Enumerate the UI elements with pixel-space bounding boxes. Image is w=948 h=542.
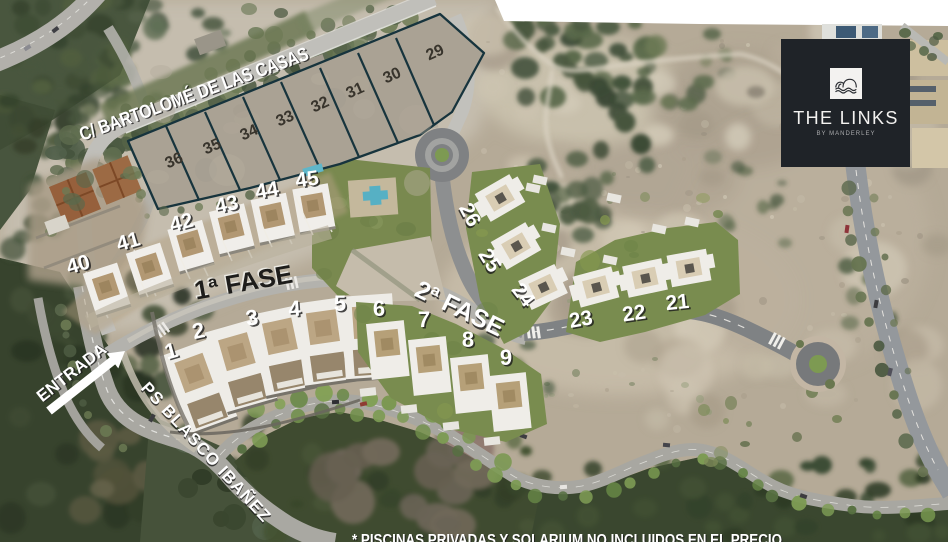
svg-text:21: 21	[665, 290, 691, 315]
svg-text:45: 45	[294, 167, 321, 193]
svg-text:THE LINKS: THE LINKS	[793, 108, 899, 128]
svg-text:23: 23	[567, 306, 594, 333]
svg-text:7: 7	[418, 307, 430, 332]
svg-text:* PISCINAS PRIVADAS Y SOLARIUM: * PISCINAS PRIVADAS Y SOLARIUM NO INCLUI…	[352, 532, 782, 542]
svg-text:8: 8	[462, 327, 474, 352]
svg-text:9: 9	[500, 345, 512, 370]
svg-text:5: 5	[334, 291, 346, 316]
svg-text:6: 6	[373, 296, 385, 321]
svg-text:BY MANDERLEY: BY MANDERLEY	[817, 131, 876, 137]
svg-text:44: 44	[253, 177, 280, 204]
svg-text:22: 22	[621, 301, 647, 327]
svg-text:43: 43	[213, 191, 241, 218]
